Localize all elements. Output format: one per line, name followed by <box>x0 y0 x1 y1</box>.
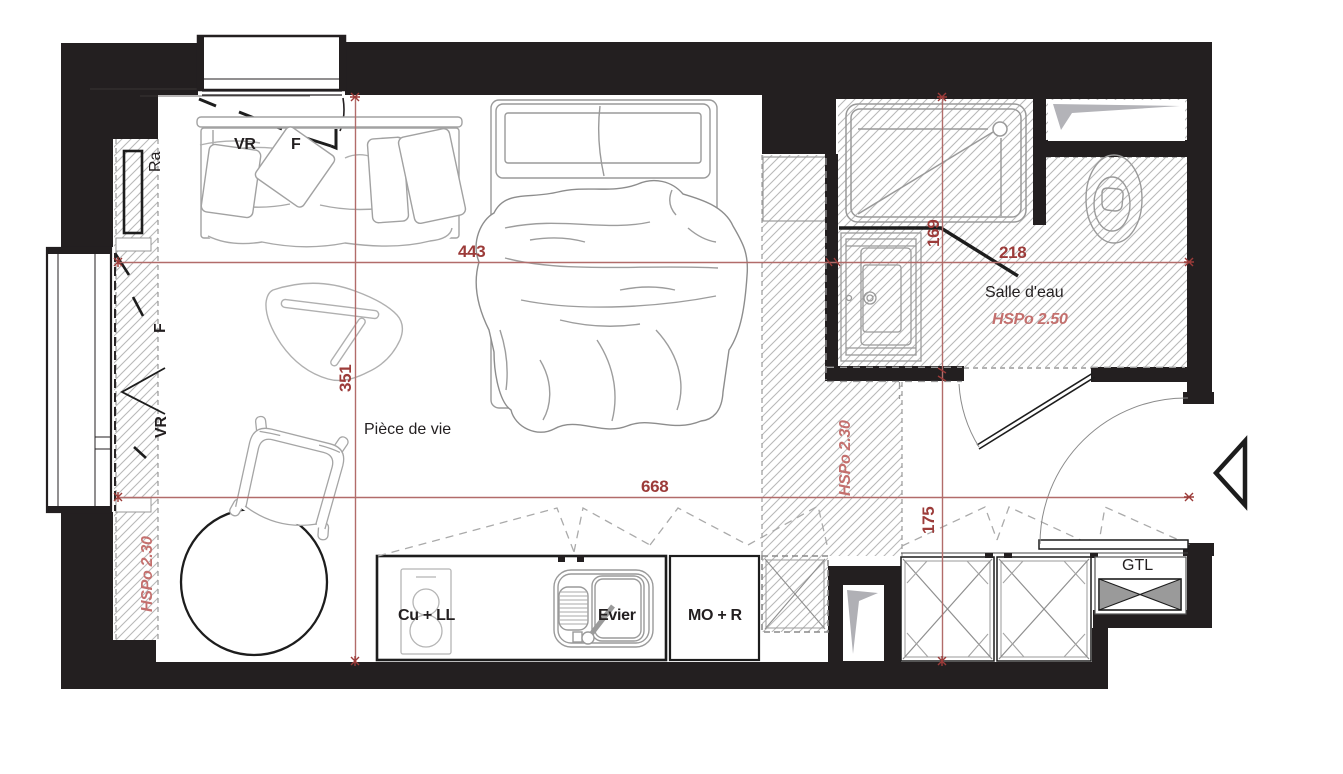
svg-text:HSPo 2.50: HSPo 2.50 <box>992 311 1068 328</box>
svg-text:HSPo 2.30: HSPo 2.30 <box>837 420 854 496</box>
svg-text:668: 668 <box>641 477 668 496</box>
svg-text:VR: VR <box>153 416 170 438</box>
svg-text:443: 443 <box>458 242 485 261</box>
svg-text:HSPo 2.30: HSPo 2.30 <box>139 536 156 612</box>
svg-text:Salle d'eau: Salle d'eau <box>985 284 1064 301</box>
svg-text:F: F <box>291 136 301 153</box>
svg-text:VR: VR <box>234 136 256 153</box>
svg-text:GTL: GTL <box>1122 557 1153 574</box>
svg-text:Cu + LL: Cu + LL <box>398 607 456 624</box>
svg-text:MO + R: MO + R <box>688 607 743 624</box>
svg-text:Evier: Evier <box>598 607 636 624</box>
svg-text:Ra: Ra <box>147 151 164 172</box>
svg-text:Pièce de vie: Pièce de vie <box>364 421 451 438</box>
svg-text:175: 175 <box>919 507 938 534</box>
svg-text:169: 169 <box>924 220 943 247</box>
svg-text:F: F <box>152 323 169 333</box>
svg-text:351: 351 <box>336 365 355 392</box>
svg-text:218: 218 <box>999 243 1026 262</box>
